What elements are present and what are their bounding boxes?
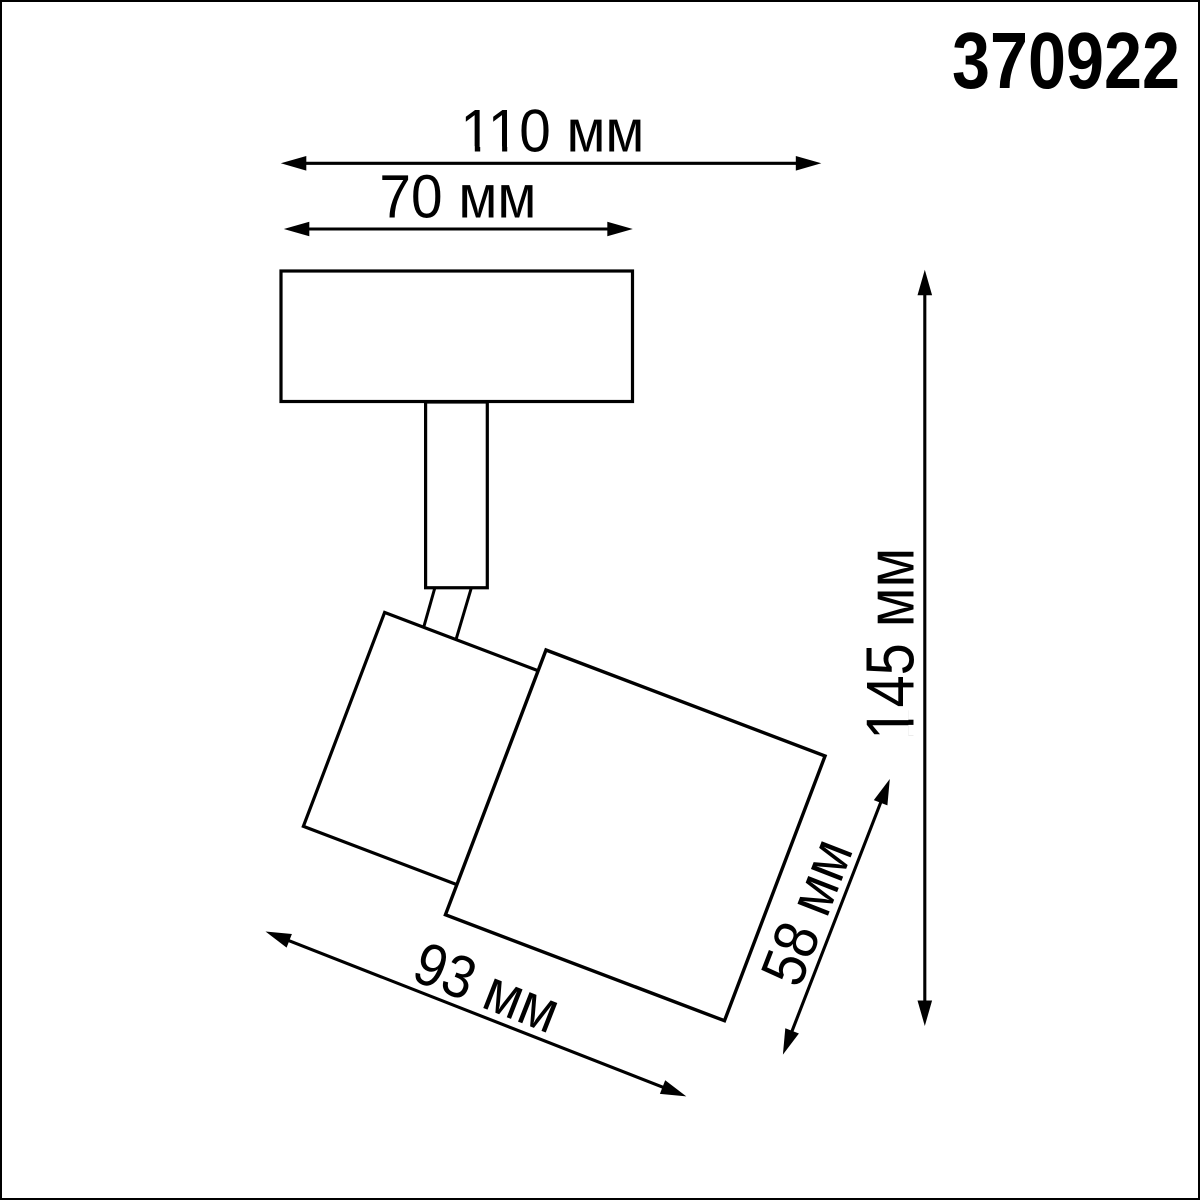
svg-text:110 мм: 110 мм — [460, 97, 644, 164]
svg-text:145 мм: 145 мм — [853, 548, 929, 740]
svg-text:370922: 370922 — [952, 16, 1180, 105]
svg-text:70 мм: 70 мм — [379, 163, 536, 231]
